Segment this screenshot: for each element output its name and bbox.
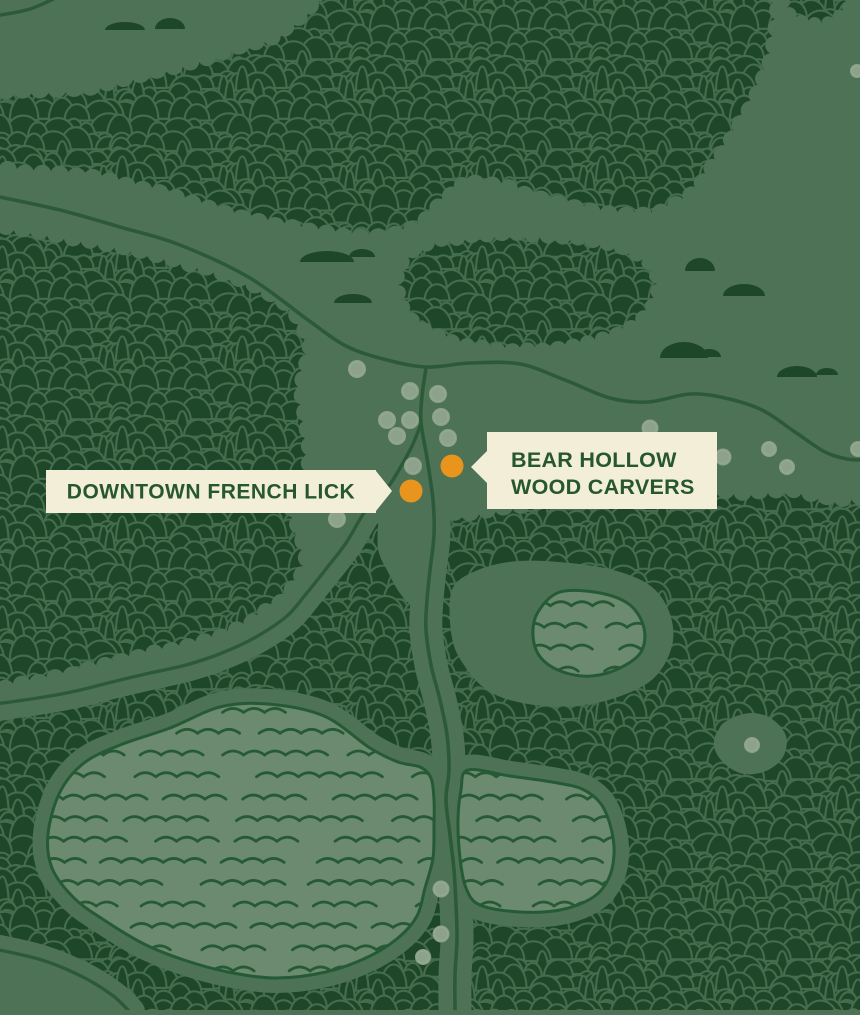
svg-text:WOOD CARVERS: WOOD CARVERS (511, 475, 695, 499)
svg-text:DOWNTOWN FRENCH LICK: DOWNTOWN FRENCH LICK (67, 481, 355, 504)
svg-text:BEAR HOLLOW: BEAR HOLLOW (511, 448, 677, 472)
